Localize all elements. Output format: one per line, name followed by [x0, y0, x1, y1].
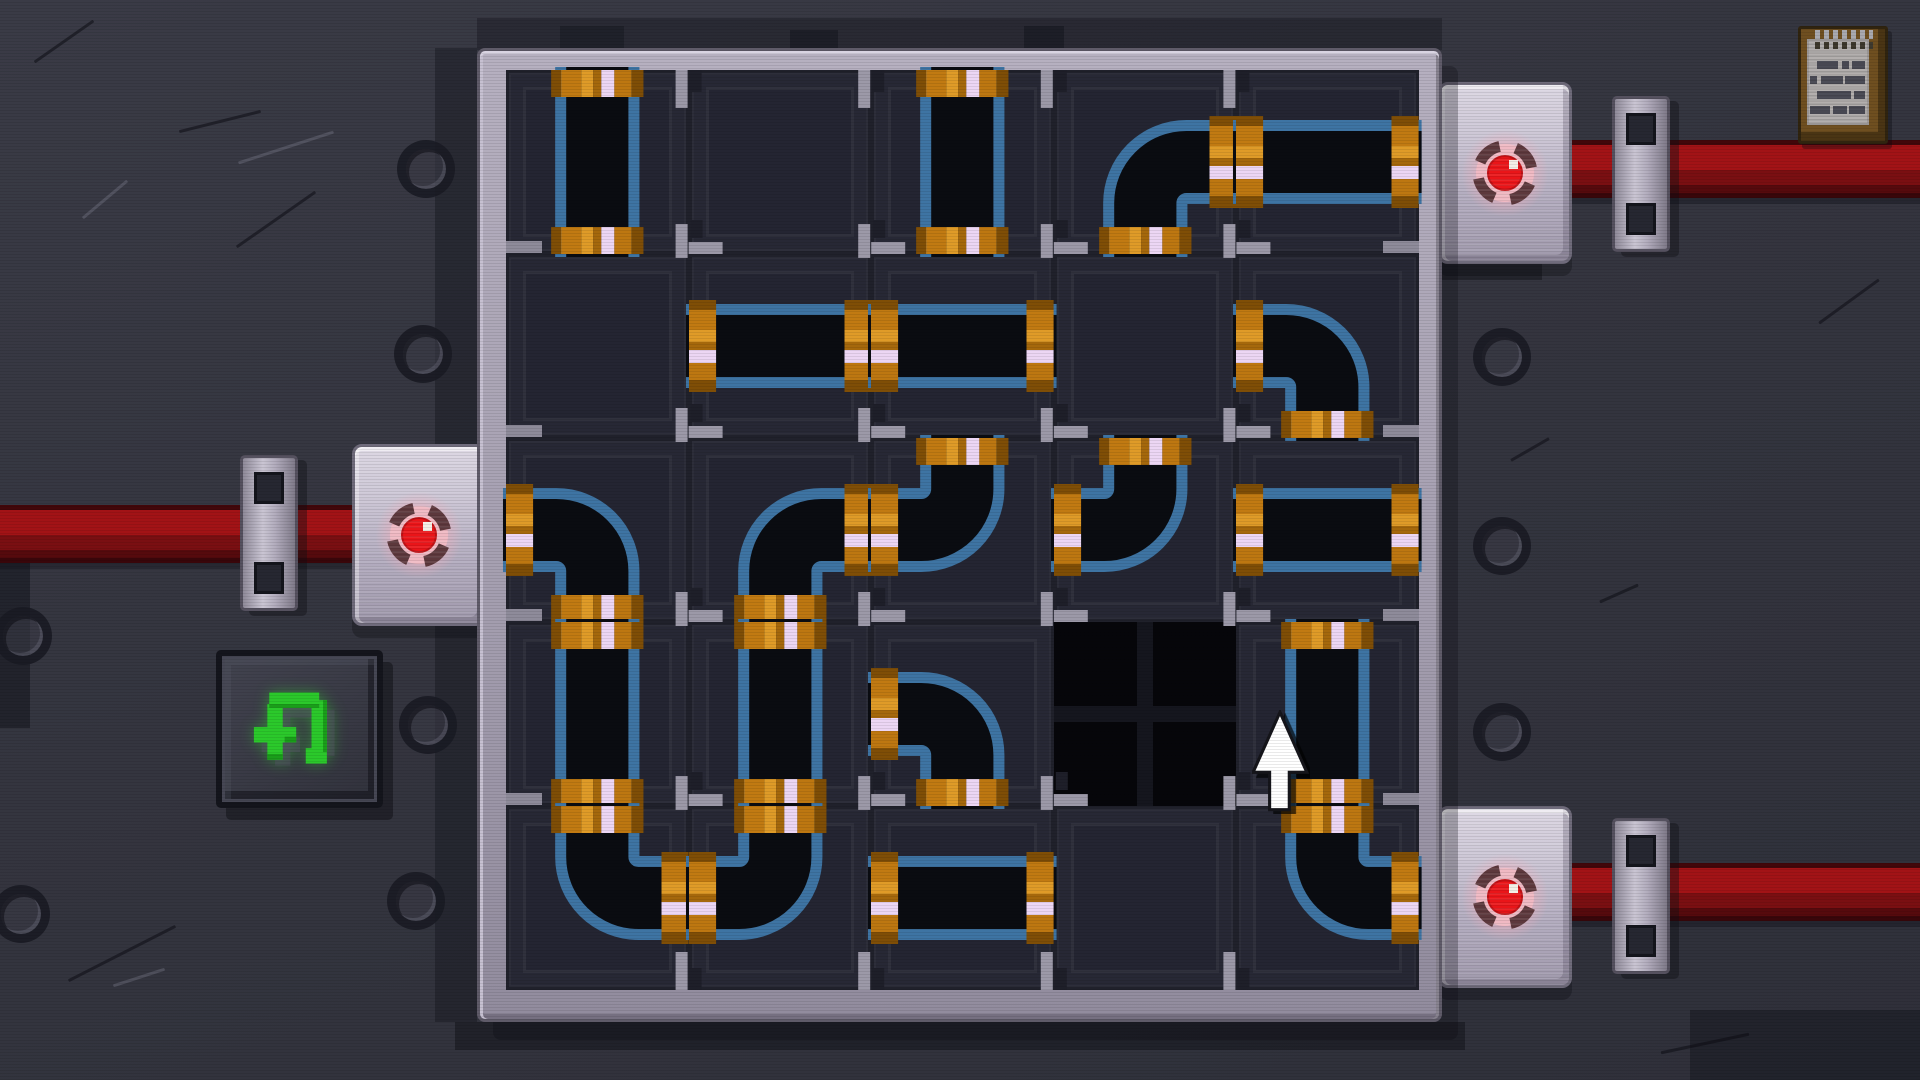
- notepad-text-line: [1821, 76, 1843, 84]
- wall-scratch: [236, 191, 316, 249]
- pipe-piece-rb-r1c4[interactable]: [1054, 70, 1237, 254]
- puzzle-board: [506, 70, 1419, 990]
- valve-red-light: [359, 475, 479, 595]
- pipe-piece-lb-r4c3[interactable]: [871, 622, 1054, 806]
- valve-red-light: [1445, 113, 1565, 233]
- notepad-text-line: [1810, 106, 1830, 114]
- wall-bolt: [1473, 328, 1531, 386]
- notepad-text-line: [1842, 61, 1849, 69]
- cell-inner-plate: [523, 271, 672, 421]
- puzzle-board-frame: [477, 48, 1442, 1022]
- notepad-spiral: [1815, 30, 1873, 39]
- wall-scratch: [179, 110, 261, 133]
- undo-button[interactable]: [216, 650, 383, 808]
- pipe-piece-h-r1c5[interactable]: [1236, 70, 1419, 254]
- wall-scratch: [34, 20, 95, 64]
- game-screen: [0, 0, 1920, 1080]
- cell-r2c1[interactable]: [506, 254, 689, 438]
- pipe-piece-tr-r5c5[interactable]: [1236, 806, 1419, 990]
- pipe-piece-v-r4c1[interactable]: [506, 622, 689, 806]
- notepad-text-line: [1810, 76, 1817, 84]
- cell-r4c4[interactable]: [1054, 622, 1237, 806]
- wall-scratch: [1599, 584, 1639, 604]
- notepad-text-line: [1852, 61, 1866, 69]
- wall-panel-shade: [560, 26, 624, 50]
- pipe-piece-lb-r3c1[interactable]: [506, 438, 689, 622]
- pipe-piece-h-r3c5[interactable]: [1236, 438, 1419, 622]
- wall-scratch: [113, 968, 165, 988]
- pipe-piece-h-r2c3[interactable]: [871, 254, 1054, 438]
- wall-bolt: [1473, 517, 1531, 575]
- wall-bolt: [387, 872, 445, 930]
- notepad-icon[interactable]: [1798, 26, 1888, 144]
- pipe-clamp-left: [240, 455, 298, 611]
- cell-inner-plate: [1071, 271, 1220, 421]
- mouse-cursor-icon: [1252, 710, 1310, 818]
- hole-cross-h: [1054, 706, 1237, 722]
- notepad-paper: [1807, 39, 1869, 125]
- notepad-text-line: [1817, 91, 1851, 99]
- wall-scratch: [68, 925, 176, 982]
- pipe-piece-h-r2c2[interactable]: [689, 254, 872, 438]
- wall-panel-shade: [455, 1022, 1465, 1050]
- pipe-piece-v-r4c2[interactable]: [689, 622, 872, 806]
- valve-left: [352, 444, 486, 626]
- wall-bolt: [397, 140, 455, 198]
- pipe-clamp-top-right: [1612, 96, 1670, 252]
- pipe-piece-tl-r5c2[interactable]: [689, 806, 872, 990]
- wall-scratch: [238, 131, 334, 165]
- wall-bolt: [394, 325, 452, 383]
- pipe-piece-v-r1c3[interactable]: [871, 70, 1054, 254]
- pipe-piece-h-r5c3[interactable]: [871, 806, 1054, 990]
- wall-scratch: [82, 180, 128, 220]
- wall-bolt: [0, 607, 52, 665]
- valve-bottom-right: [1438, 806, 1572, 988]
- wall-bolt: [399, 696, 457, 754]
- pipe-piece-lb-r2c5[interactable]: [1236, 254, 1419, 438]
- pipe-piece-tl-r3c4[interactable]: [1054, 438, 1237, 622]
- cell-r2c4[interactable]: [1054, 254, 1237, 438]
- wall-bolt: [0, 885, 50, 943]
- cell-r1c2[interactable]: [689, 70, 872, 254]
- notepad-text-line: [1849, 106, 1865, 114]
- pipe-clamp-bottom-right: [1612, 818, 1670, 974]
- notepad-text-line: [1833, 106, 1847, 114]
- pipe-piece-v-r1c1[interactable]: [506, 70, 689, 254]
- wall-panel-shade: [1690, 1010, 1920, 1080]
- notepad-text-line: [1817, 61, 1838, 69]
- cell-r5c4[interactable]: [1054, 806, 1237, 990]
- valve-top-right: [1438, 82, 1572, 264]
- cell-inner-plate: [706, 87, 855, 237]
- notepad-text-line: [1845, 76, 1865, 84]
- pipe-piece-tl-r3c3[interactable]: [871, 438, 1054, 622]
- cell-inner-plate: [1071, 823, 1220, 973]
- pipe-piece-tr-r5c1[interactable]: [506, 806, 689, 990]
- notepad-text-line: [1854, 91, 1865, 99]
- red-pipe-left: [0, 505, 362, 563]
- valve-red-light: [1445, 837, 1565, 957]
- wall-scratch: [1818, 279, 1880, 325]
- notepad-holes: [1815, 42, 1873, 49]
- wall-bolt: [1473, 703, 1531, 761]
- undo-arrow-icon: [252, 679, 348, 779]
- wall-scratch: [1510, 437, 1550, 462]
- pipe-piece-rb-r3c2[interactable]: [689, 438, 872, 622]
